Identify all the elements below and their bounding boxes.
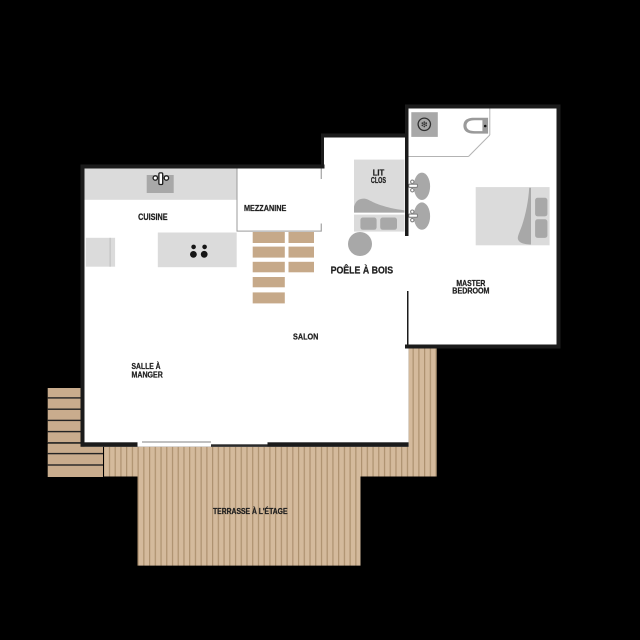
svg-text:CLOS: CLOS	[371, 176, 386, 185]
svg-text:MEZZANINE: MEZZANINE	[244, 203, 286, 213]
svg-text:TERRASSE À L'ÉTAGE: TERRASSE À L'ÉTAGE	[213, 507, 288, 516]
svg-text:BEDROOM: BEDROOM	[452, 287, 489, 296]
svg-text:CUISINE: CUISINE	[138, 212, 168, 222]
svg-text:SALON: SALON	[293, 332, 318, 342]
svg-text:MANGER: MANGER	[132, 370, 164, 380]
svg-text:POÊLE À BOIS: POÊLE À BOIS	[331, 265, 394, 277]
